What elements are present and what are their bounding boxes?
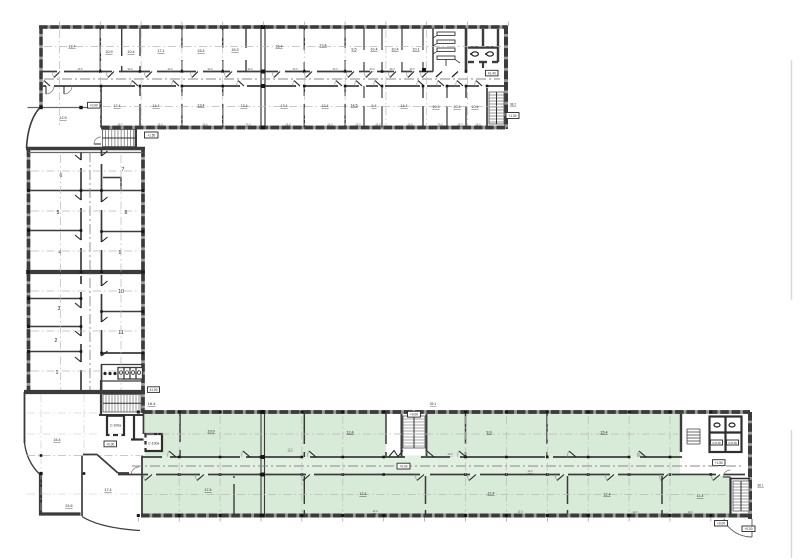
- svg-text:41.90: 41.90: [150, 388, 158, 392]
- svg-text:C=0.00: C=0.00: [728, 441, 737, 445]
- svg-text:15.4: 15.4: [600, 431, 607, 435]
- svg-text:10.4: 10.4: [391, 48, 398, 52]
- svg-text:38.1: 38.1: [757, 484, 763, 488]
- svg-text:19.9: 19.9: [207, 430, 214, 434]
- svg-text:25.0: 25.0: [245, 123, 251, 127]
- svg-text:12.4: 12.4: [603, 493, 610, 497]
- svg-text:12.0: 12.0: [372, 509, 378, 513]
- svg-text:30.0: 30.0: [409, 67, 415, 71]
- svg-text:16.4: 16.4: [148, 401, 157, 406]
- svg-text:C-100a: C-100a: [148, 442, 159, 446]
- svg-text:25.0: 25.0: [327, 123, 333, 127]
- svg-text:17.4: 17.4: [487, 492, 494, 496]
- svg-text:12.0: 12.0: [447, 452, 453, 456]
- svg-text:10.4: 10.4: [453, 105, 460, 109]
- svg-text:12.9: 12.9: [59, 116, 66, 120]
- svg-text:38.2: 38.2: [510, 103, 516, 107]
- svg-text:14.4: 14.4: [400, 104, 407, 108]
- svg-text:12.4: 12.4: [113, 104, 120, 108]
- svg-text:25.0: 25.0: [285, 123, 291, 127]
- svg-text:10.9: 10.9: [105, 50, 112, 54]
- svg-text:12.0: 12.0: [632, 510, 638, 514]
- svg-text:30.0: 30.0: [167, 67, 173, 71]
- svg-text:25.0: 25.0: [457, 123, 463, 127]
- svg-text:17.1: 17.1: [157, 49, 164, 53]
- svg-text:30.0: 30.0: [247, 67, 253, 71]
- svg-text:2: 2: [55, 338, 58, 344]
- svg-text:+0.00: +0.00: [90, 104, 98, 108]
- svg-text:+1.50: +1.50: [147, 133, 155, 137]
- svg-text:10.4: 10.4: [370, 48, 377, 52]
- svg-text:7: 7: [122, 167, 125, 173]
- svg-text:13.4: 13.4: [240, 104, 247, 108]
- svg-text:30.0: 30.0: [332, 67, 338, 71]
- svg-text:+1.50: +1.50: [715, 461, 723, 465]
- svg-text:9.5: 9.5: [351, 48, 356, 52]
- svg-text:9.9: 9.9: [486, 431, 491, 435]
- svg-text:15.4: 15.4: [197, 49, 204, 53]
- svg-text:41.40: 41.40: [488, 72, 496, 76]
- svg-text:30.0: 30.0: [369, 67, 375, 71]
- svg-text:39.1: 39.1: [430, 402, 437, 406]
- svg-text:24.6: 24.6: [65, 504, 72, 508]
- svg-text:30.0: 30.0: [127, 67, 133, 71]
- svg-text:14.4: 14.4: [152, 104, 159, 108]
- svg-text:4: 4: [59, 250, 62, 256]
- svg-text:25.0: 25.0: [202, 123, 208, 127]
- svg-text:25.0: 25.0: [375, 123, 381, 127]
- svg-text:+0.00: +0.00: [744, 527, 752, 531]
- svg-text:10: 10: [118, 289, 124, 295]
- svg-text:+0.00: +0.00: [106, 442, 114, 446]
- svg-text:15.4: 15.4: [275, 45, 282, 49]
- svg-text:6: 6: [60, 173, 63, 179]
- svg-text:25.0: 25.0: [475, 123, 481, 127]
- svg-text:25.0: 25.0: [355, 123, 361, 127]
- svg-text:12.0: 12.0: [687, 510, 693, 514]
- svg-text:12.0: 12.0: [527, 469, 533, 473]
- svg-text:+1.50: +1.50: [508, 114, 516, 118]
- svg-text:+0.00: +0.00: [399, 465, 407, 469]
- svg-text:25.0: 25.0: [157, 123, 163, 127]
- svg-text:30.0: 30.0: [77, 67, 83, 71]
- svg-text:12.0: 12.0: [637, 453, 643, 457]
- svg-text:17.4: 17.4: [104, 488, 111, 492]
- svg-text:11.4: 11.4: [697, 494, 704, 498]
- svg-text:13.4: 13.4: [280, 104, 287, 108]
- svg-text:10.5: 10.5: [432, 105, 439, 109]
- svg-text:14.5: 14.5: [350, 104, 357, 108]
- svg-text:+0.00: +0.00: [717, 522, 725, 526]
- svg-text:10.4: 10.4: [127, 50, 134, 54]
- svg-text:15.4: 15.4: [53, 438, 60, 442]
- svg-text:30.0: 30.0: [292, 67, 298, 71]
- svg-text:C=0.00: C=0.00: [712, 441, 721, 445]
- svg-text:3: 3: [58, 306, 61, 312]
- svg-text:12.4: 12.4: [346, 431, 353, 435]
- svg-text:12.0: 12.0: [287, 448, 293, 452]
- svg-text:10.1: 10.1: [412, 48, 419, 52]
- svg-text:30.0: 30.0: [389, 67, 395, 71]
- svg-text:13.4: 13.4: [197, 104, 204, 108]
- svg-text:25.0: 25.0: [407, 123, 413, 127]
- svg-text:10.4: 10.4: [471, 105, 478, 109]
- svg-text:25.0: 25.0: [437, 123, 443, 127]
- svg-text:+0.00: +0.00: [410, 413, 418, 417]
- svg-text:12.4: 12.4: [359, 492, 366, 496]
- svg-text:17.4: 17.4: [204, 488, 211, 492]
- svg-text:13.4: 13.4: [319, 44, 326, 48]
- svg-text:13.4: 13.4: [68, 45, 75, 49]
- svg-text:12.0: 12.0: [517, 510, 523, 514]
- svg-text:25.0: 25.0: [117, 123, 123, 127]
- svg-text:13.4: 13.4: [321, 104, 328, 108]
- svg-text:30.0: 30.0: [207, 67, 213, 71]
- svg-text:C-100a: C-100a: [110, 424, 121, 428]
- svg-text:9.4: 9.4: [371, 104, 376, 108]
- svg-text:15.3: 15.3: [231, 48, 238, 52]
